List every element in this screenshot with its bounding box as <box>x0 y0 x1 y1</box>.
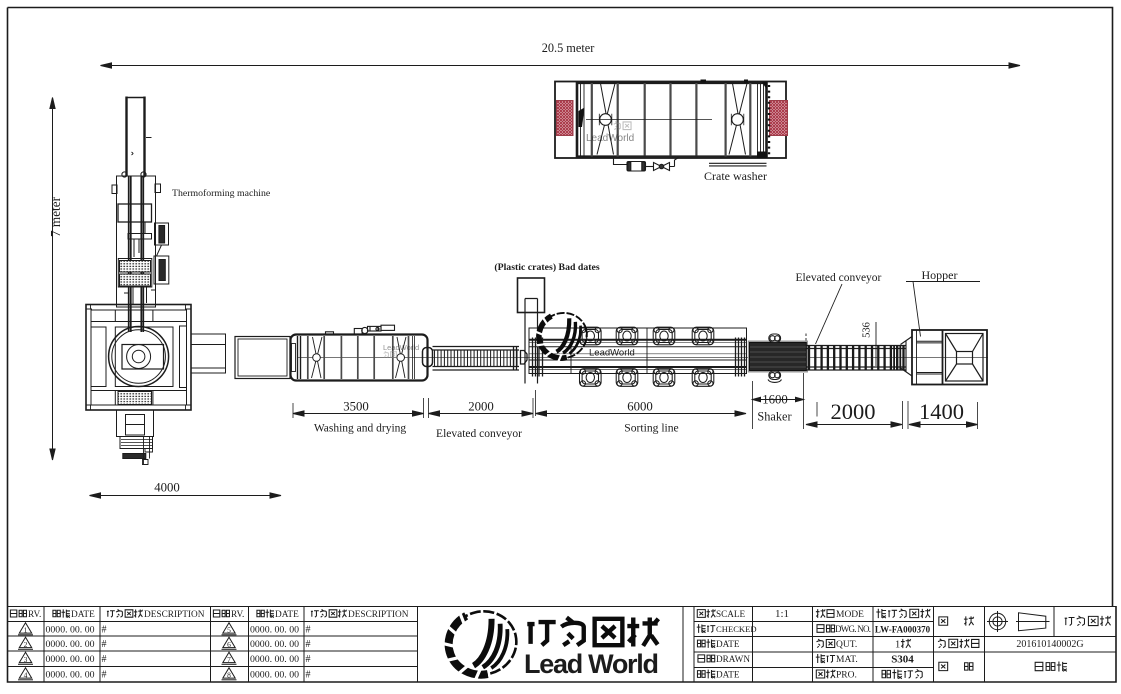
svg-text:1: 1 <box>24 626 28 635</box>
svg-text:8: 8 <box>227 671 231 680</box>
svg-text:Shaker: Shaker <box>757 410 791 424</box>
svg-text:4000: 4000 <box>154 481 180 495</box>
svg-text:0000. 00. 00: 0000. 00. 00 <box>250 624 299 635</box>
svg-text:MODE: MODE <box>836 610 864 620</box>
svg-text:DATE: DATE <box>716 639 740 649</box>
svg-text:(Plastic crates) Bad dates: (Plastic crates) Bad dates <box>494 262 599 273</box>
svg-text:Thermoforming machine: Thermoforming machine <box>172 188 271 199</box>
svg-text:CHECKED: CHECKED <box>716 624 757 634</box>
svg-text:DATE: DATE <box>71 610 95 620</box>
svg-text:0000. 00. 00: 0000. 00. 00 <box>250 669 299 680</box>
svg-text:0000. 00. 00: 0000. 00. 00 <box>250 654 299 665</box>
svg-text:5: 5 <box>227 626 231 635</box>
svg-text:RV.: RV. <box>28 610 41 620</box>
svg-text:536: 536 <box>862 322 873 338</box>
svg-text:3: 3 <box>24 655 28 664</box>
svg-text:0000. 00. 00: 0000. 00. 00 <box>46 624 95 635</box>
svg-text:LW-FA000370: LW-FA000370 <box>875 624 931 634</box>
svg-text:3500: 3500 <box>343 400 369 414</box>
svg-text:Hopper: Hopper <box>922 268 958 282</box>
svg-text:Washing and drying: Washing and drying <box>314 423 407 435</box>
svg-text:2000: 2000 <box>831 399 876 424</box>
svg-text:DRAWN: DRAWN <box>716 654 750 664</box>
svg-text:DATE: DATE <box>716 670 740 680</box>
svg-text:1400: 1400 <box>919 399 964 424</box>
svg-text:2: 2 <box>24 640 28 649</box>
svg-text:7 meter: 7 meter <box>48 196 63 237</box>
svg-text:0000. 00. 00: 0000. 00. 00 <box>46 639 95 650</box>
svg-text:Crate washer: Crate washer <box>704 169 767 183</box>
svg-text:0000. 00. 00: 0000. 00. 00 <box>46 654 95 665</box>
svg-text:#: # <box>306 669 311 680</box>
svg-text:20.5 meter: 20.5 meter <box>542 41 595 55</box>
svg-text:6: 6 <box>227 640 231 649</box>
svg-text:6000: 6000 <box>627 400 653 414</box>
svg-text:2000: 2000 <box>468 400 494 414</box>
svg-text:#: # <box>102 624 107 635</box>
svg-text:DESCRIPTION: DESCRIPTION <box>348 610 409 620</box>
svg-text:4: 4 <box>24 671 28 680</box>
svg-text:1:1: 1:1 <box>775 608 789 620</box>
svg-text:MAT.: MAT. <box>836 655 858 665</box>
svg-text:S304: S304 <box>891 653 914 665</box>
svg-text:PRO.: PRO. <box>836 671 857 681</box>
svg-text:#: # <box>102 669 107 680</box>
svg-text:DATE: DATE <box>275 610 299 620</box>
svg-text:Elevated conveyor: Elevated conveyor <box>436 428 522 440</box>
svg-text:0000. 00. 00: 0000. 00. 00 <box>250 639 299 650</box>
svg-text:#: # <box>102 654 107 665</box>
svg-text:#: # <box>102 639 107 650</box>
svg-text:SCALE: SCALE <box>716 609 745 619</box>
svg-text:Lead World: Lead World <box>524 649 659 679</box>
svg-text:LeadWorld: LeadWorld <box>383 343 419 352</box>
svg-text:LeadWorld: LeadWorld <box>589 348 635 359</box>
svg-text:DESCRIPTION: DESCRIPTION <box>144 610 205 620</box>
svg-text:7: 7 <box>227 655 231 664</box>
svg-text:#: # <box>306 639 311 650</box>
svg-text:201610140002G: 201610140002G <box>1016 639 1083 650</box>
svg-text:#: # <box>306 654 311 665</box>
svg-text:LeadWorld: LeadWorld <box>586 133 634 144</box>
svg-text:1: 1 <box>895 639 900 650</box>
svg-text:#: # <box>306 624 311 635</box>
svg-text:QUT.: QUT. <box>836 640 857 650</box>
svg-text:Sorting line: Sorting line <box>624 422 678 435</box>
svg-text:1600: 1600 <box>762 393 788 407</box>
svg-text:DWG. NO.: DWG. NO. <box>835 624 871 634</box>
svg-text:Elevated conveyor: Elevated conveyor <box>796 272 882 284</box>
svg-text:0000. 00. 00: 0000. 00. 00 <box>46 669 95 680</box>
svg-text:RV.: RV. <box>231 610 244 620</box>
